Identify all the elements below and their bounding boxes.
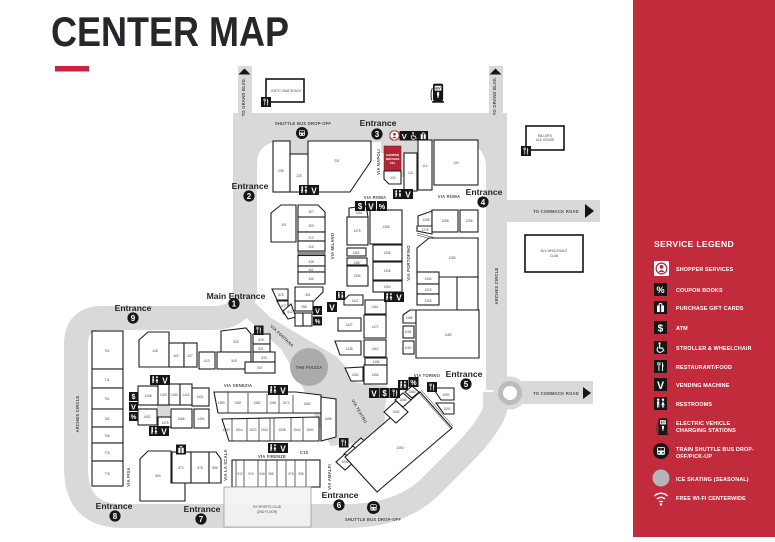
svg-text:766: 766 xyxy=(104,434,110,438)
svg-text:1499: 1499 xyxy=(217,401,224,405)
svg-text:Entrance: Entrance xyxy=(446,369,483,379)
svg-text:1582: 1582 xyxy=(253,401,260,405)
svg-text:1300: 1300 xyxy=(383,285,390,289)
svg-text:701: 701 xyxy=(104,349,110,353)
svg-text:873: 873 xyxy=(178,466,184,470)
svg-text:966: 966 xyxy=(268,472,274,476)
svg-text:VIA TORINO: VIA TORINO xyxy=(414,373,441,378)
svg-text:TO COMMACK ROAD: TO COMMACK ROAD xyxy=(533,209,579,214)
svg-text:1581: 1581 xyxy=(269,401,276,405)
svg-text:1458: 1458 xyxy=(372,360,379,364)
svg-text:301: 301 xyxy=(281,223,287,227)
svg-text:VIA VENEZIA: VIA VENEZIA xyxy=(224,383,252,388)
svg-text:VIA LA SCALA: VIA LA SCALA xyxy=(223,449,228,480)
svg-text:617: 617 xyxy=(281,304,287,308)
svg-text:437: 437 xyxy=(187,354,193,358)
svg-text:1476: 1476 xyxy=(161,421,168,425)
svg-text:537: 537 xyxy=(257,366,263,370)
svg-text:5: 5 xyxy=(464,380,469,389)
svg-text:1303: 1303 xyxy=(424,299,431,303)
svg-text:132: 132 xyxy=(390,176,396,180)
svg-text:ARCHES CIRCLE: ARCHES CIRCLE xyxy=(494,267,499,304)
svg-text:1288: 1288 xyxy=(441,219,448,223)
svg-text:SHOPPER: SHOPPER xyxy=(386,153,399,157)
svg-text:529: 529 xyxy=(258,338,264,342)
svg-text:976: 976 xyxy=(288,472,294,476)
svg-text:7: 7 xyxy=(199,515,204,524)
svg-text:1375: 1375 xyxy=(353,229,360,233)
svg-text:1462: 1462 xyxy=(371,347,378,351)
svg-text:1448: 1448 xyxy=(144,394,151,398)
svg-text:RESTROOMS: RESTROOMS xyxy=(676,402,712,408)
svg-text:338: 338 xyxy=(308,260,314,264)
svg-text:341: 341 xyxy=(308,268,314,272)
svg-text:531: 531 xyxy=(258,347,264,351)
svg-text:948: 948 xyxy=(259,472,265,476)
svg-text:1330: 1330 xyxy=(424,277,431,281)
svg-text:1438: 1438 xyxy=(345,347,352,351)
svg-text:1152: 1152 xyxy=(405,346,412,350)
svg-text:1387: 1387 xyxy=(353,261,360,265)
svg-text:612: 612 xyxy=(287,310,293,314)
svg-text:778: 778 xyxy=(104,472,110,476)
svg-text:448: 448 xyxy=(152,349,158,353)
svg-text:1086: 1086 xyxy=(399,398,406,402)
svg-text:TO GRAND BLVD.: TO GRAND BLVD. xyxy=(241,78,246,116)
svg-text:533: 533 xyxy=(261,356,267,360)
svg-text:Entrance: Entrance xyxy=(360,118,397,128)
svg-text:3: 3 xyxy=(375,130,380,139)
svg-text:ARCHES CIRCLE: ARCHES CIRCLE xyxy=(75,395,80,432)
svg-text:1550: 1550 xyxy=(306,428,313,432)
svg-text:VENDING MACHINE: VENDING MACHINE xyxy=(676,383,730,389)
svg-text:1092: 1092 xyxy=(443,407,450,411)
svg-text:ICE SKATING (SEASONAL): ICE SKATING (SEASONAL) xyxy=(676,477,749,483)
svg-text:313: 313 xyxy=(308,236,314,240)
svg-text:Entrance: Entrance xyxy=(96,501,133,511)
svg-text:SHUTTLE BUS DROP-OFF: SHUTTLE BUS DROP-OFF xyxy=(275,121,332,126)
svg-text:VIA FIRENZE: VIA FIRENZE xyxy=(258,454,286,459)
svg-text:1154: 1154 xyxy=(405,330,412,334)
svg-text:9: 9 xyxy=(131,314,136,323)
svg-text:225: 225 xyxy=(296,174,302,178)
svg-text:8: 8 xyxy=(113,512,118,521)
svg-text:460: 460 xyxy=(173,354,179,358)
svg-text:346: 346 xyxy=(308,277,314,281)
svg-text:VIA MILANO: VIA MILANO xyxy=(330,232,335,259)
svg-text:Entrance: Entrance xyxy=(466,187,503,197)
svg-text:CHARGING STATIONS: CHARGING STATIONS xyxy=(676,428,736,434)
svg-text:OFF/PICK-UP: OFF/PICK-UP xyxy=(676,454,712,460)
svg-text:358: 358 xyxy=(301,305,307,309)
svg-text:1401: 1401 xyxy=(196,395,203,399)
svg-text:1587: 1587 xyxy=(234,401,241,405)
svg-text:776: 776 xyxy=(104,451,110,455)
svg-text:201: 201 xyxy=(334,159,340,163)
svg-text:COUPON BOOKS: COUPON BOOKS xyxy=(676,288,723,294)
svg-text:1538: 1538 xyxy=(278,428,285,432)
svg-text:1542: 1542 xyxy=(293,428,300,432)
svg-text:ATM: ATM xyxy=(676,326,688,332)
svg-text:1278: 1278 xyxy=(421,228,428,232)
svg-text:TRAIN SHUTTLE BUS DROP-: TRAIN SHUTTLE BUS DROP- xyxy=(676,447,754,453)
svg-text:1296: 1296 xyxy=(465,219,472,223)
svg-text:Entrance: Entrance xyxy=(184,504,221,514)
svg-text:896: 896 xyxy=(212,466,218,470)
svg-text:996: 996 xyxy=(298,472,304,476)
svg-text:4: 4 xyxy=(481,198,486,207)
svg-text:1520: 1520 xyxy=(249,428,256,432)
svg-text:C10: C10 xyxy=(300,450,309,455)
svg-text:SERVICES: SERVICES xyxy=(386,157,400,161)
svg-text:1080: 1080 xyxy=(408,390,415,394)
svg-text:VIA AMALFI: VIA AMALFI xyxy=(327,464,332,490)
svg-text:1050: 1050 xyxy=(396,446,403,450)
svg-text:912: 912 xyxy=(237,472,243,476)
svg-text:SHUTTLE BUS DROP-OFF: SHUTTLE BUS DROP-OFF xyxy=(345,517,402,522)
svg-text:1466: 1466 xyxy=(177,417,184,421)
svg-text:112: 112 xyxy=(422,164,427,168)
svg-text:1514: 1514 xyxy=(235,428,242,432)
svg-text:1416: 1416 xyxy=(182,393,189,397)
svg-text:1361: 1361 xyxy=(355,211,362,215)
svg-text:RESTAURANT/FOOD: RESTAURANT/FOOD xyxy=(676,365,732,371)
svg-text:VIA NAPOLI: VIA NAPOLI xyxy=(376,149,381,175)
svg-text:1558: 1558 xyxy=(324,417,331,421)
svg-text:1150: 1150 xyxy=(445,333,452,337)
svg-text:1382: 1382 xyxy=(352,251,359,255)
svg-text:1430: 1430 xyxy=(171,393,178,397)
svg-text:878: 878 xyxy=(197,466,203,470)
svg-text:1472: 1472 xyxy=(371,325,378,329)
svg-text:Entrance: Entrance xyxy=(322,490,359,500)
svg-text:THE PIAZZA: THE PIAZZA xyxy=(296,365,323,370)
svg-text:1280: 1280 xyxy=(448,256,455,260)
svg-text:SHOPPER SERVICES: SHOPPER SERVICES xyxy=(676,267,734,273)
svg-text:1060: 1060 xyxy=(392,410,399,414)
svg-text:FS1: FS1 xyxy=(390,161,395,165)
svg-text:2: 2 xyxy=(247,192,252,201)
svg-text:1336: 1336 xyxy=(383,251,390,255)
svg-text:(2ND FLOOR): (2ND FLOOR) xyxy=(257,510,277,514)
svg-text:1500: 1500 xyxy=(222,428,229,432)
svg-text:VIA ROMA: VIA ROMA xyxy=(438,194,460,199)
svg-text:VIA ROMA: VIA ROMA xyxy=(364,195,386,200)
svg-text:JOE'S CRAB SHACK: JOE'S CRAB SHACK xyxy=(271,89,302,93)
svg-text:1524: 1524 xyxy=(261,428,268,432)
svg-text:NY SPORTS CLUB: NY SPORTS CLUB xyxy=(253,505,281,509)
svg-text:1494: 1494 xyxy=(197,417,204,421)
svg-text:924: 924 xyxy=(248,472,254,476)
svg-text:CENTER MAP: CENTER MAP xyxy=(51,8,289,55)
svg-text:307: 307 xyxy=(308,210,314,214)
svg-text:1308: 1308 xyxy=(382,225,389,229)
svg-text:6: 6 xyxy=(337,501,342,510)
svg-text:351: 351 xyxy=(305,293,311,297)
svg-text:525: 525 xyxy=(233,340,239,344)
svg-text:309: 309 xyxy=(308,224,314,228)
svg-text:751: 751 xyxy=(104,397,110,401)
svg-text:TO GRAND BLVD.: TO GRAND BLVD. xyxy=(492,77,497,115)
svg-text:255: 255 xyxy=(278,169,284,173)
svg-text:1461: 1461 xyxy=(371,305,378,309)
svg-text:ALE HOUSE: ALE HOUSE xyxy=(536,138,554,142)
svg-text:1315: 1315 xyxy=(424,288,431,292)
svg-text:1394: 1394 xyxy=(353,274,360,278)
svg-text:1571: 1571 xyxy=(282,401,289,405)
svg-text:100: 100 xyxy=(453,161,459,165)
svg-text:VIA PISA: VIA PISA xyxy=(126,467,131,486)
svg-text:1156: 1156 xyxy=(406,316,413,320)
svg-text:1563: 1563 xyxy=(303,402,310,406)
svg-text:1268: 1268 xyxy=(422,218,429,222)
svg-text:762: 762 xyxy=(104,417,110,421)
svg-text:PURCHASE GIFT CARDS: PURCHASE GIFT CARDS xyxy=(676,306,744,312)
svg-text:110: 110 xyxy=(408,171,413,175)
svg-text:TO COMMACK ROAD: TO COMMACK ROAD xyxy=(533,391,579,396)
svg-text:1447: 1447 xyxy=(351,299,358,303)
svg-text:1427: 1427 xyxy=(345,323,352,327)
svg-text:FREE WI-FI CENTERWIDE: FREE WI-FI CENTERWIDE xyxy=(676,496,746,502)
svg-text:CLUB: CLUB xyxy=(550,254,559,258)
svg-text:1308: 1308 xyxy=(383,269,390,273)
svg-text:625: 625 xyxy=(278,293,284,297)
svg-text:1090: 1090 xyxy=(442,393,449,397)
svg-text:549: 549 xyxy=(231,359,237,363)
svg-text:ELECTRIC VEHICLE: ELECTRIC VEHICLE xyxy=(676,421,730,427)
svg-text:850: 850 xyxy=(155,474,161,478)
svg-text:1420: 1420 xyxy=(160,393,167,397)
svg-text:711: 711 xyxy=(104,378,109,382)
svg-text:Entrance: Entrance xyxy=(232,181,269,191)
svg-text:1452: 1452 xyxy=(143,415,150,419)
svg-text:613: 613 xyxy=(204,359,210,363)
svg-text:316: 316 xyxy=(308,245,314,249)
svg-text:1450: 1450 xyxy=(351,373,358,377)
svg-text:VIA PORTOFINO: VIA PORTOFINO xyxy=(406,245,411,281)
svg-text:STROLLER & WHEELCHAIR: STROLLER & WHEELCHAIR xyxy=(676,346,752,352)
svg-text:BJ's WHOLESALE: BJ's WHOLESALE xyxy=(541,249,568,253)
svg-text:Entrance: Entrance xyxy=(115,303,152,313)
svg-text:1: 1 xyxy=(232,300,237,309)
svg-text:SERVICE LEGEND: SERVICE LEGEND xyxy=(654,239,734,249)
svg-text:1456: 1456 xyxy=(371,373,378,377)
